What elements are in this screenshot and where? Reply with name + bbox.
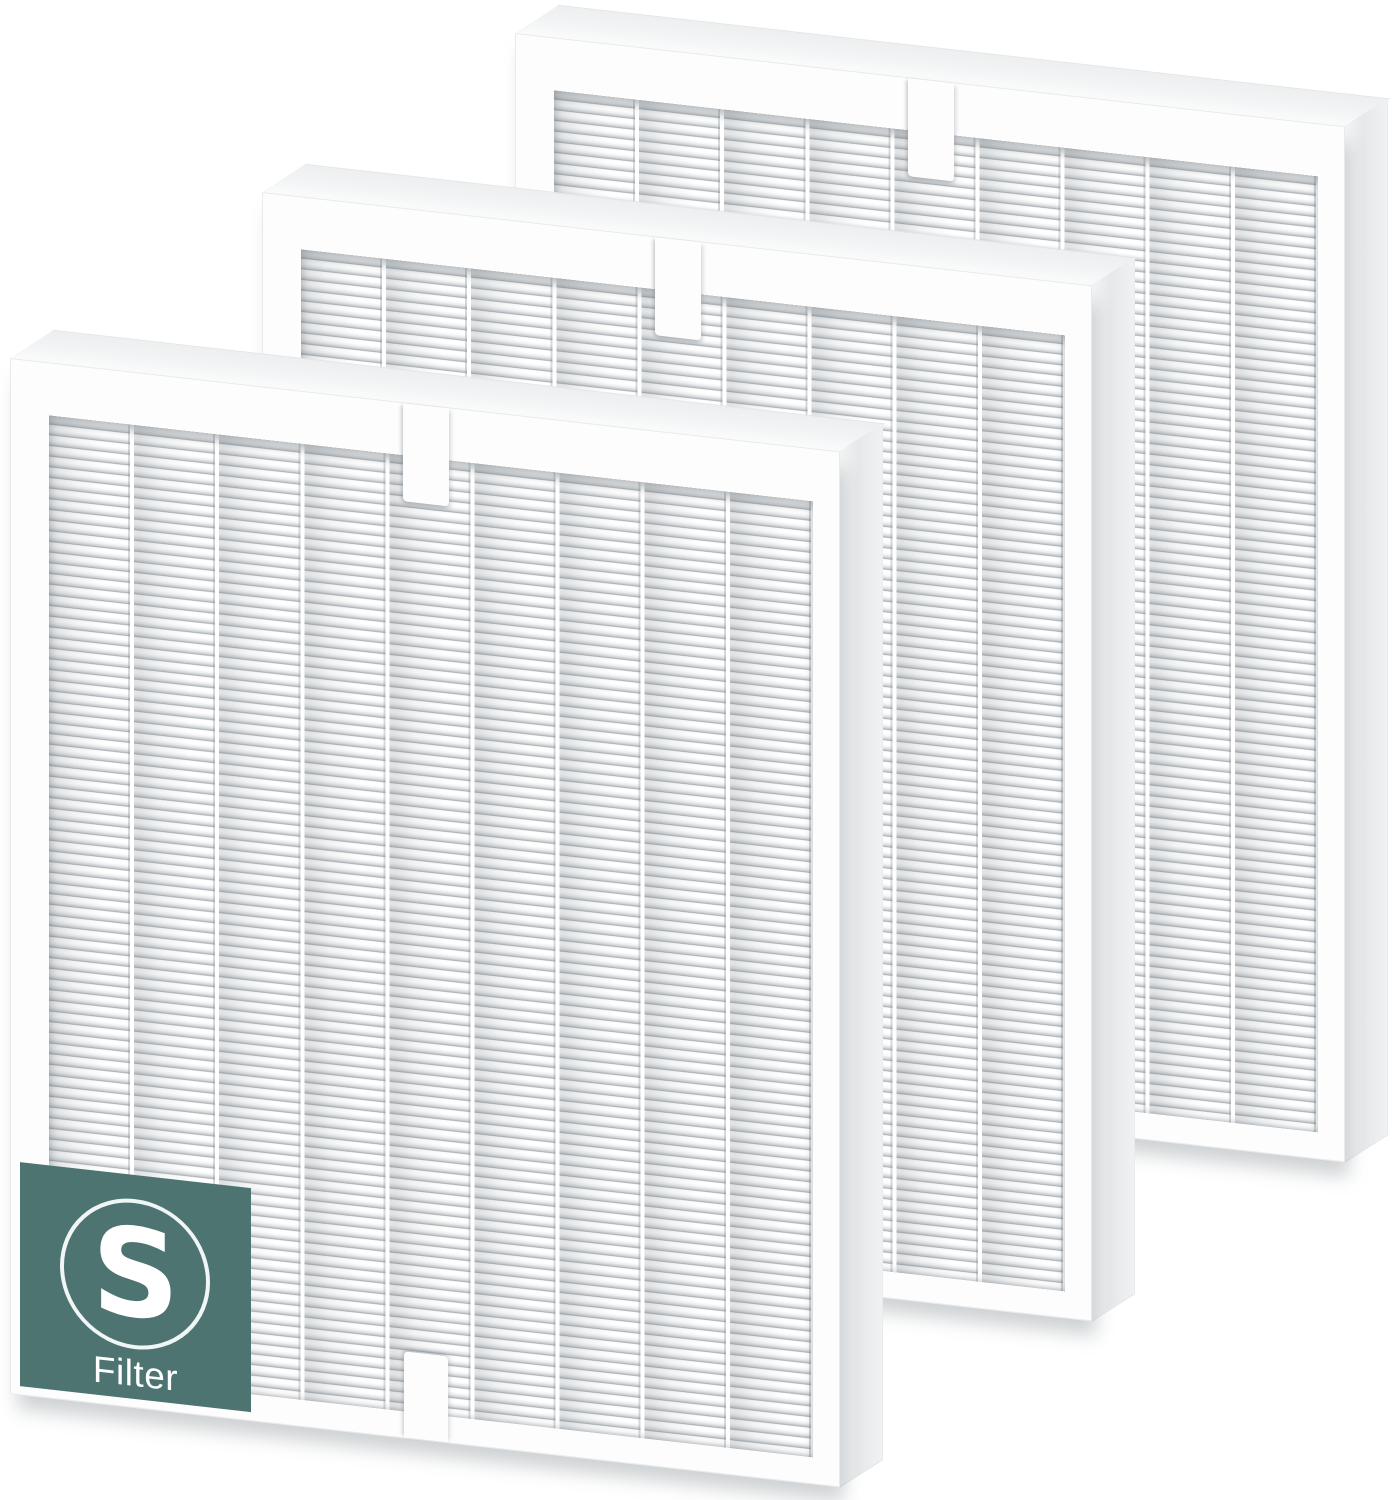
product-image-stage: S Filter xyxy=(0,0,1398,1500)
filter-front-face: S Filter xyxy=(10,358,840,1487)
hepa-filter-front: S Filter xyxy=(10,358,840,1487)
filter-top-tab xyxy=(655,237,701,340)
badge-letter: S xyxy=(20,1186,251,1362)
s-filter-badge: S Filter xyxy=(20,1162,251,1412)
filter-right-side-face xyxy=(1344,98,1388,1163)
filter-bottom-tab xyxy=(404,1351,448,1442)
filter-right-side-face xyxy=(839,423,883,1488)
filter-top-tab xyxy=(403,403,449,506)
filter-right-side-face xyxy=(1091,257,1135,1322)
filter-top-tab xyxy=(908,78,954,181)
